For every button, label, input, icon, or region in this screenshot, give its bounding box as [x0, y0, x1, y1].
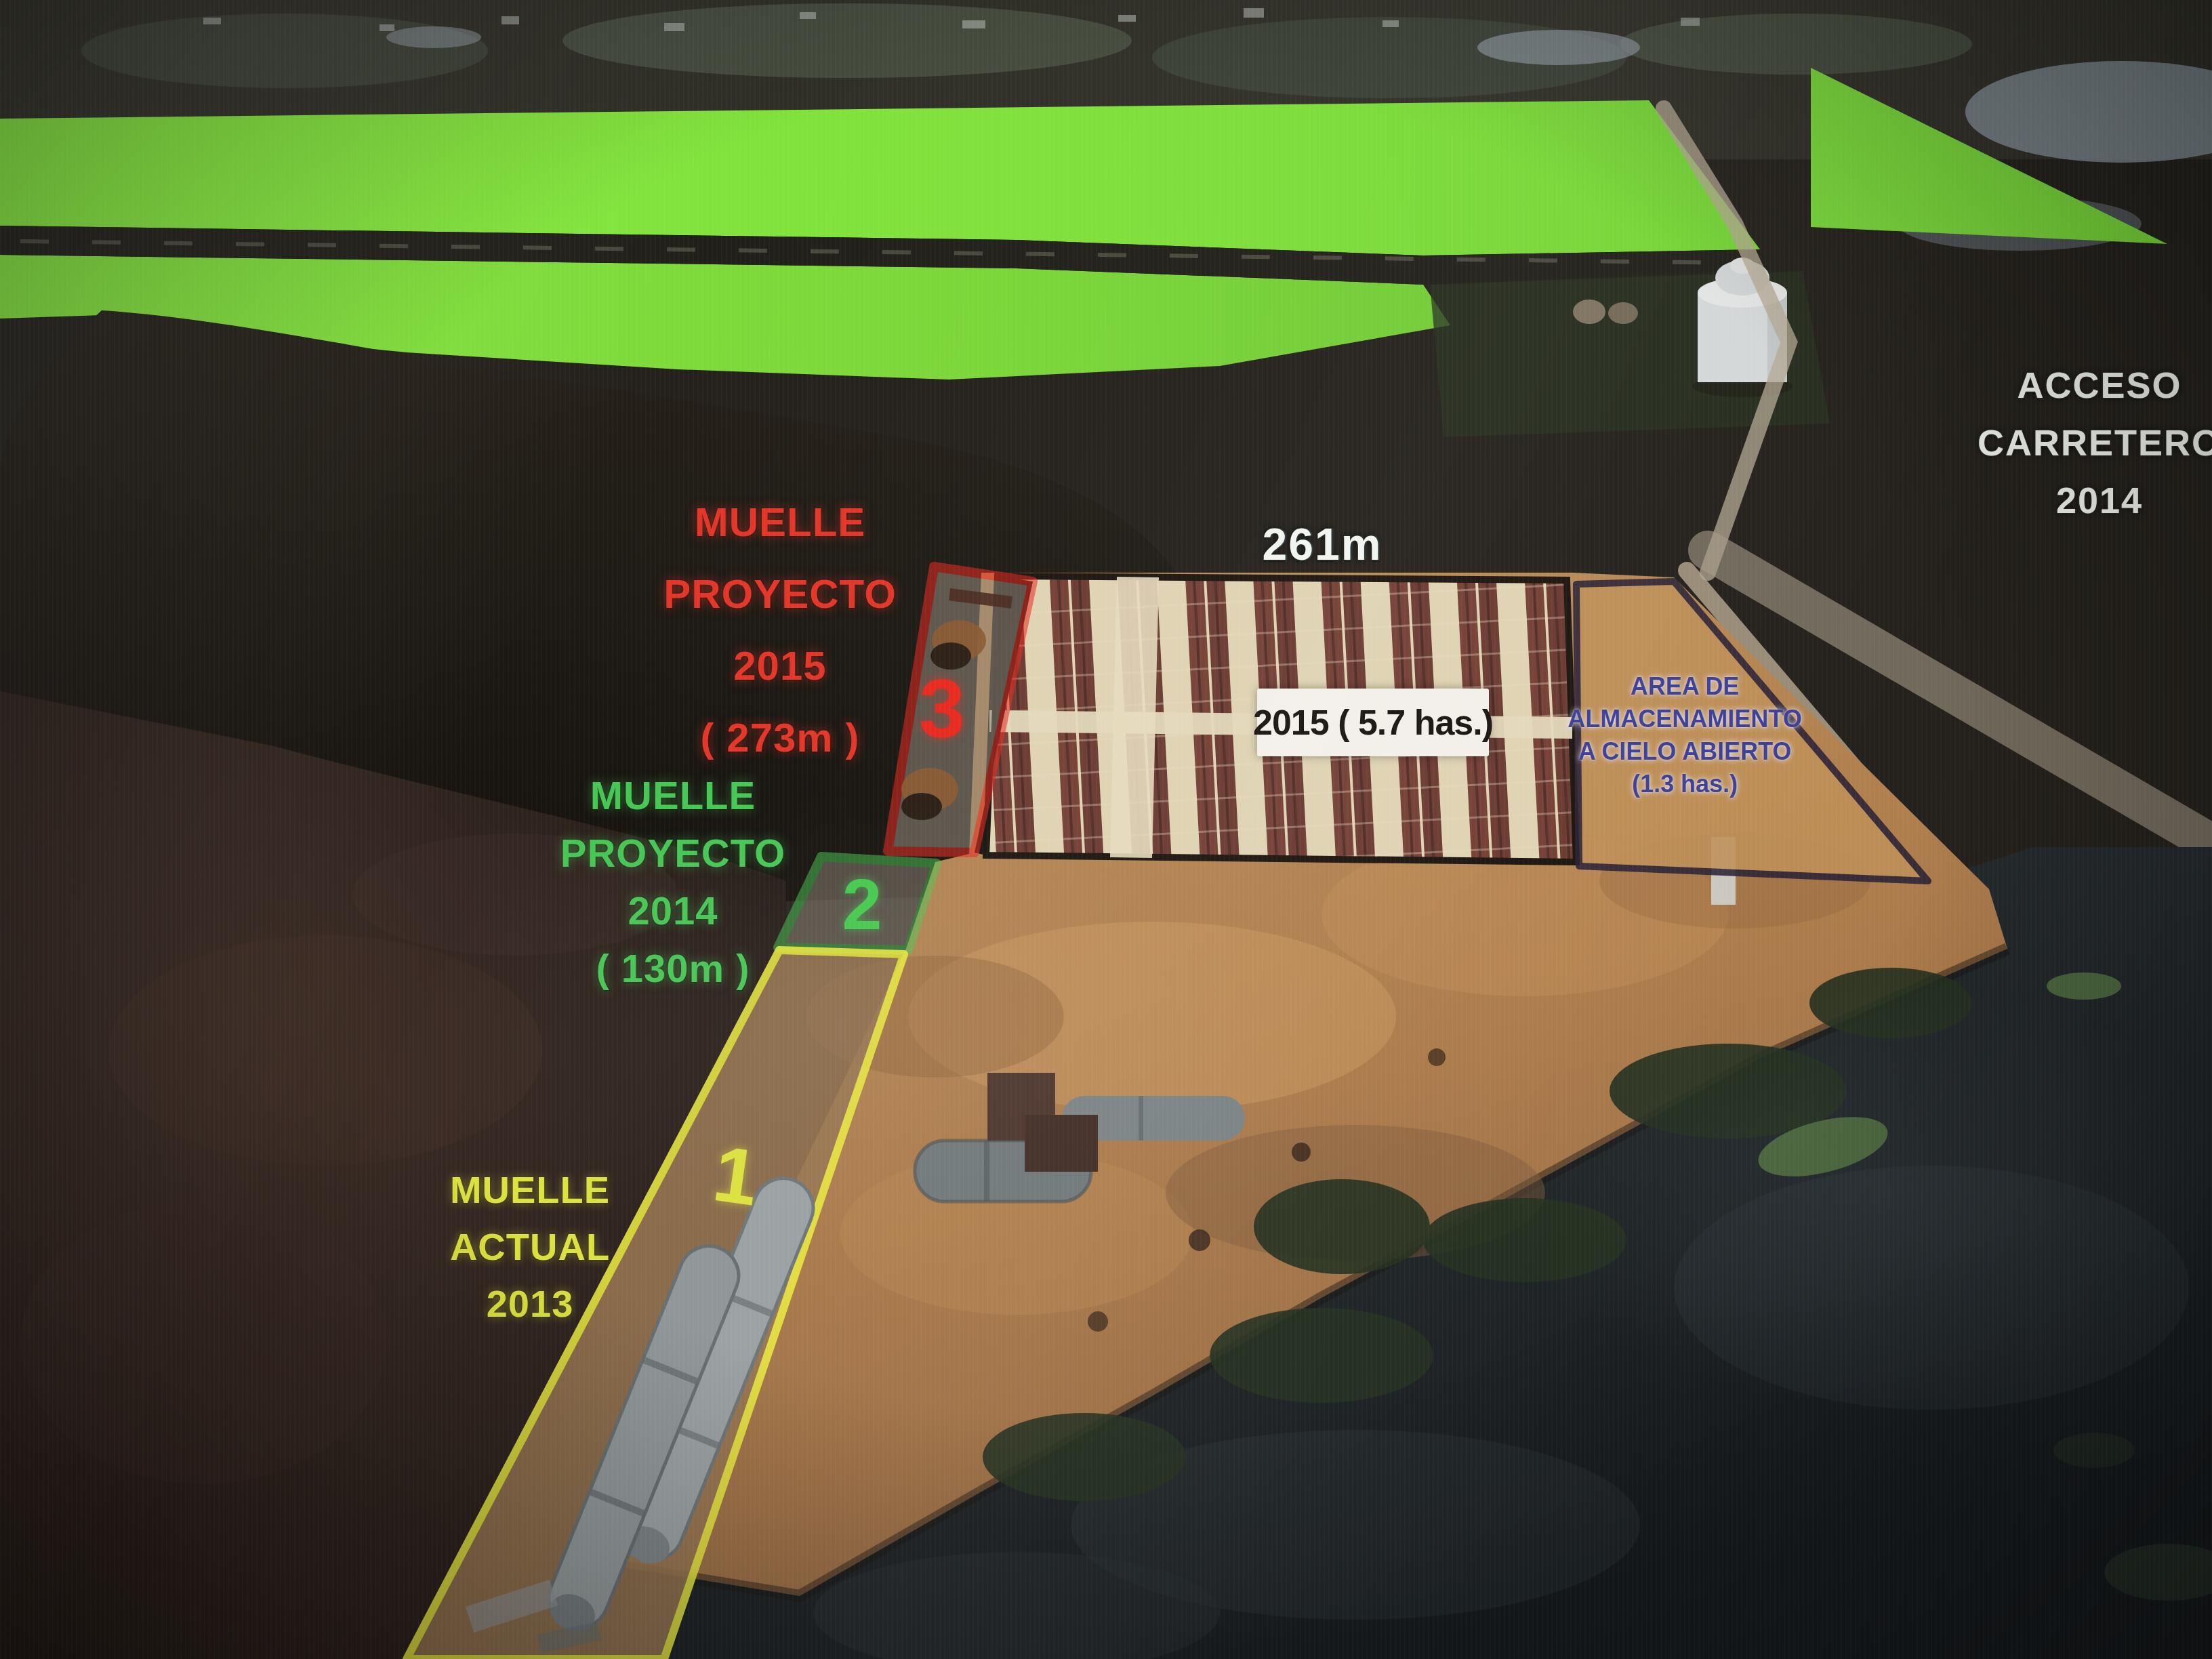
yard-main-aisle — [1110, 577, 1159, 858]
label-muelle-actual-2013: MUELLE ACTUAL 2013 — [450, 1162, 610, 1332]
label-line: ALMACENAMIENTO — [1568, 703, 1801, 735]
label-line: ( 130m ) — [560, 939, 785, 997]
label-line: ACTUAL — [450, 1218, 610, 1275]
annotated-aerial-photo: MUELLE PROYECTO 2015 ( 273m ) MUELLE PRO… — [0, 0, 2212, 1659]
label-line: A CIELO ABIERTO — [1568, 735, 1801, 768]
label-line: (1.3 has.) — [1568, 768, 1801, 800]
label-acceso-carretero: ACCESO CARRETERO 2014 — [1978, 356, 2212, 529]
yard-area-label-box: 2015 ( 5.7 has.) — [1257, 689, 1489, 756]
label-line: CARRETERO — [1978, 414, 2212, 472]
label-line: 2013 — [450, 1275, 610, 1332]
label-line: PROYECTO — [560, 824, 785, 882]
label-line: ACCESO — [1978, 356, 2212, 414]
label-line: MUELLE — [560, 766, 785, 824]
label-line: ( 273m ) — [663, 702, 897, 774]
label-line: MUELLE — [450, 1162, 610, 1218]
zone-2-number: 2 — [842, 868, 882, 940]
label-muelle-proyecto-2015: MUELLE PROYECTO 2015 ( 273m ) — [663, 487, 897, 774]
label-line: MUELLE — [663, 487, 897, 558]
quay-length-value: 261m — [1263, 522, 1382, 567]
yard-area-value: 2015 ( 5.7 has.) — [1253, 702, 1493, 743]
label-line: AREA DE — [1568, 670, 1801, 703]
label-line: 2014 — [1978, 472, 2212, 529]
label-line: PROYECTO — [663, 558, 897, 630]
label-line: 2015 — [663, 630, 897, 702]
label-quay-length: 261m — [1263, 522, 1382, 567]
label-line: 2014 — [560, 882, 785, 939]
zone-3-number: 3 — [919, 668, 965, 750]
site-building-2 — [1025, 1115, 1098, 1172]
label-muelle-proyecto-2014: MUELLE PROYECTO 2014 ( 130m ) — [560, 766, 785, 997]
label-storage-area: AREA DE ALMACENAMIENTO A CIELO ABIERTO (… — [1568, 670, 1801, 800]
aerial-scene — [0, 0, 2212, 1659]
